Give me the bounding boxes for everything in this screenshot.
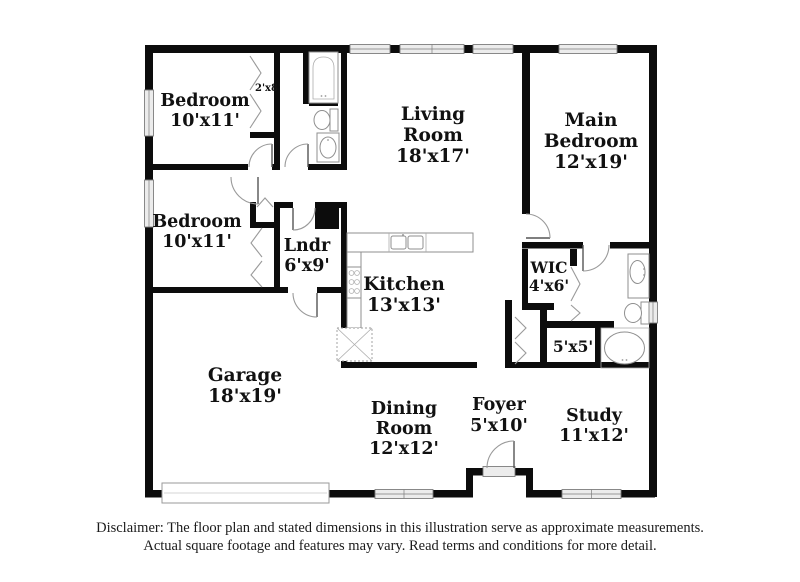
label-study: Study — [566, 406, 623, 426]
label-living-1: Living — [401, 104, 465, 125]
label-dining-1: Dining — [371, 399, 437, 419]
door-hall-bath — [285, 144, 308, 167]
label-laundry-dims: 6'x9' — [284, 256, 330, 276]
window-top-main-bedroom — [559, 45, 617, 54]
window-top-3 — [473, 45, 513, 54]
bifold-hall-closet-1 — [515, 317, 526, 339]
label-bedroom-top: Bedroom — [160, 91, 250, 111]
door-laundry-garage — [293, 293, 317, 317]
closet-doors — [250, 56, 580, 364]
stove-icon — [347, 267, 361, 298]
bifold-closet-bed2-2 — [251, 261, 262, 287]
label-bedroom-mid: Bedroom — [152, 212, 242, 232]
door-bedroom1 — [249, 144, 272, 167]
bifold-wic — [571, 267, 580, 301]
floor-plan-page: Bedroom 10'x11' 2'x8' Living Room 18'x17… — [0, 0, 800, 582]
label-main-bedroom-dims: 12'x19' — [554, 152, 628, 173]
door-main-suite — [526, 214, 550, 238]
kitchen-sink-icon — [391, 236, 406, 249]
door-main-bath — [583, 245, 609, 271]
kitchen-sink-icon — [408, 236, 423, 249]
window-top-1 — [350, 45, 390, 54]
label-living-dims: 18'x17' — [396, 146, 470, 167]
sink-icon — [317, 133, 339, 162]
water-heater-icon — [315, 208, 339, 229]
label-dining-dims: 12'x12' — [369, 439, 439, 459]
room-labels: Bedroom 10'x11' 2'x8' Living Room 18'x17… — [152, 83, 638, 459]
entry-threshold — [483, 467, 515, 477]
label-kitchen: Kitchen — [363, 274, 445, 295]
label-main-bedroom-2: Bedroom — [544, 131, 639, 152]
label-foyer: Foyer — [472, 395, 526, 415]
bathtub-icon — [309, 52, 338, 103]
label-wic-dims: 4'x6' — [529, 276, 569, 295]
label-bedroom-mid-dims: 10'x11' — [162, 232, 232, 252]
label-foyer-dims: 5'x10' — [470, 416, 528, 436]
bifold-closet-top-2 — [250, 94, 261, 128]
label-closet-top-dims: 2'x8' — [255, 83, 281, 94]
bifold-hall-linen — [257, 198, 273, 207]
label-garage: Garage — [208, 365, 282, 386]
door-laundry — [293, 208, 315, 230]
label-living-2: Room — [403, 125, 463, 146]
label-study-dims: 11'x12' — [559, 426, 629, 446]
window-bottom-study — [562, 490, 621, 499]
window-left-bedroom1 — [145, 90, 154, 136]
vanity-sink-icon — [628, 254, 649, 298]
toilet-icon — [314, 109, 338, 131]
disclaimer-line-1: Disclaimer: The floor plan and stated di… — [96, 520, 704, 536]
label-main-bedroom-1: Main — [565, 110, 618, 131]
bifold-closet-bed2-1 — [251, 228, 262, 257]
label-dining-2: Room — [376, 419, 433, 439]
label-bedroom-top-dims: 10'x11' — [170, 111, 240, 131]
window-top-2 — [400, 45, 464, 54]
garage-door-icon — [162, 483, 329, 503]
toilet-icon — [625, 302, 650, 324]
fixtures — [309, 52, 649, 368]
label-laundry: Lndr — [284, 236, 331, 256]
disclaimer-text: Disclaimer: The floor plan and stated di… — [96, 520, 704, 554]
window-bottom-dining — [375, 490, 433, 499]
label-wic: WIC — [530, 258, 568, 277]
label-kitchen-dims: 13'x13' — [367, 295, 441, 316]
label-closet-5x5-dims: 5'x5' — [553, 337, 593, 356]
disclaimer-line-2: Actual square footage and features may v… — [143, 538, 656, 554]
label-garage-dims: 18'x19' — [208, 386, 282, 407]
cabinet-icon — [337, 328, 372, 361]
floor-plan-svg: Bedroom 10'x11' 2'x8' Living Room 18'x17… — [0, 0, 800, 582]
bifold-linen2 — [571, 305, 580, 321]
window-right-bath — [649, 302, 658, 323]
door-front-entry — [487, 441, 514, 468]
door-bedroom2 — [231, 177, 258, 204]
bifold-hall-closet-2 — [515, 342, 526, 364]
